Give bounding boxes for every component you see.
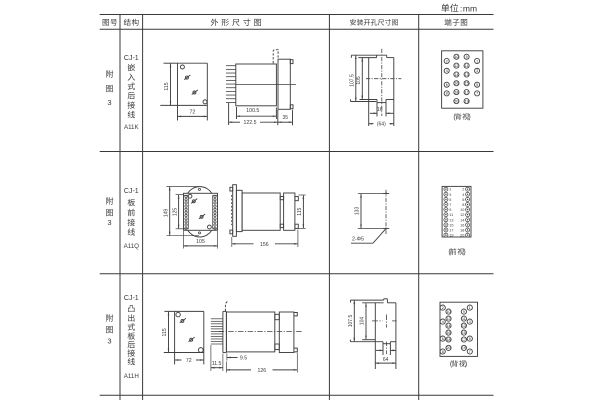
svg-text:1: 1 — [476, 59, 478, 63]
svg-text:4: 4 — [442, 320, 444, 324]
svg-text:15: 15 — [449, 223, 453, 227]
svg-text:125: 125 — [172, 208, 178, 217]
svg-text:122.5: 122.5 — [244, 120, 257, 126]
svg-text:6: 6 — [446, 83, 448, 87]
svg-text:3: 3 — [107, 337, 111, 346]
svg-text:10: 10 — [454, 55, 458, 59]
svg-text:10: 10 — [447, 310, 451, 314]
svg-text:105: 105 — [356, 76, 362, 85]
svg-text:20: 20 — [447, 346, 451, 350]
svg-text:7: 7 — [469, 350, 471, 354]
svg-text:2: 2 — [442, 306, 444, 310]
svg-text:3: 3 — [107, 218, 111, 227]
svg-text:107.5: 107.5 — [348, 315, 354, 328]
svg-text:11: 11 — [462, 317, 466, 321]
svg-text:2: 2 — [462, 188, 464, 192]
svg-text:14: 14 — [447, 324, 451, 328]
svg-text::: : — [460, 3, 462, 13]
svg-text:7: 7 — [476, 92, 478, 96]
svg-text:18: 18 — [454, 90, 458, 94]
svg-text:5: 5 — [476, 83, 478, 87]
svg-text:2-Φ5: 2-Φ5 — [352, 237, 364, 243]
svg-text:133: 133 — [355, 207, 361, 216]
svg-text:115: 115 — [162, 328, 168, 336]
svg-text:A11H: A11H — [124, 373, 139, 380]
svg-text:A11Q: A11Q — [124, 243, 140, 250]
svg-text:8: 8 — [446, 92, 448, 96]
svg-text:3: 3 — [476, 69, 478, 73]
svg-text:15: 15 — [462, 331, 466, 335]
svg-text:13: 13 — [449, 218, 453, 222]
svg-text:16: 16 — [377, 107, 383, 113]
svg-text:11.5: 11.5 — [212, 361, 222, 367]
svg-text:14: 14 — [460, 218, 464, 222]
svg-text:20: 20 — [460, 234, 464, 238]
svg-text:72: 72 — [186, 358, 192, 364]
svg-text:2: 2 — [446, 59, 448, 63]
svg-text:9: 9 — [449, 208, 451, 212]
svg-text:CJ-1: CJ-1 — [124, 188, 139, 195]
svg-text:3: 3 — [449, 193, 451, 197]
svg-text:12: 12 — [460, 213, 464, 217]
svg-text:): ) — [465, 361, 467, 368]
svg-text:17: 17 — [462, 338, 466, 342]
svg-text:16: 16 — [460, 223, 464, 227]
svg-text:14: 14 — [454, 73, 458, 77]
svg-text:15: 15 — [465, 82, 469, 86]
svg-text:104: 104 — [360, 317, 366, 326]
svg-text:mm: mm — [463, 3, 477, 13]
svg-text:5: 5 — [449, 198, 451, 202]
svg-text:): ) — [468, 114, 470, 121]
svg-text:3: 3 — [469, 320, 471, 324]
svg-text:12: 12 — [447, 317, 451, 321]
svg-text:1: 1 — [469, 306, 471, 310]
svg-text:4: 4 — [446, 69, 448, 73]
svg-text:10: 10 — [460, 208, 464, 212]
svg-text:9.5: 9.5 — [240, 355, 247, 361]
svg-text:): ) — [463, 249, 465, 256]
svg-text:72: 72 — [190, 109, 196, 115]
svg-text:CJ-1: CJ-1 — [124, 55, 139, 62]
svg-text:16: 16 — [447, 331, 451, 335]
svg-text:13: 13 — [465, 73, 469, 77]
svg-text:16: 16 — [454, 82, 458, 86]
svg-text:107.5: 107.5 — [349, 74, 355, 87]
svg-text:6: 6 — [442, 337, 444, 341]
svg-text:35: 35 — [283, 115, 289, 121]
svg-text:CJ-1: CJ-1 — [124, 295, 139, 302]
svg-text:19: 19 — [465, 99, 469, 103]
svg-text:149: 149 — [163, 209, 169, 218]
svg-text:19: 19 — [462, 346, 466, 350]
svg-text:18: 18 — [447, 338, 451, 342]
svg-text:6: 6 — [462, 198, 464, 202]
svg-text:156: 156 — [260, 242, 269, 248]
svg-text:8: 8 — [442, 350, 444, 354]
svg-text:64: 64 — [383, 357, 389, 363]
svg-text:11: 11 — [465, 64, 469, 68]
svg-text:9: 9 — [463, 310, 465, 314]
svg-text:11: 11 — [449, 213, 453, 217]
svg-text:17: 17 — [465, 90, 469, 94]
svg-text:8: 8 — [462, 203, 464, 207]
svg-text:100.5: 100.5 — [246, 108, 259, 114]
svg-text:115: 115 — [297, 208, 303, 216]
svg-text:1: 1 — [449, 188, 451, 192]
svg-text:7: 7 — [449, 203, 451, 207]
svg-text:105: 105 — [196, 239, 205, 245]
svg-text:A11K: A11K — [124, 124, 140, 131]
svg-text:19: 19 — [449, 234, 453, 238]
svg-text:17: 17 — [449, 229, 453, 233]
svg-text:4: 4 — [462, 193, 464, 197]
svg-text:5: 5 — [469, 337, 471, 341]
svg-text:9: 9 — [466, 55, 468, 59]
svg-text:(64): (64) — [377, 122, 386, 128]
svg-text:126: 126 — [257, 368, 266, 374]
svg-text:13: 13 — [462, 324, 466, 328]
svg-text:20: 20 — [454, 99, 458, 103]
svg-text:12: 12 — [454, 64, 458, 68]
svg-text:3: 3 — [107, 98, 111, 107]
svg-text:18: 18 — [460, 229, 464, 233]
svg-text:115: 115 — [164, 82, 170, 90]
